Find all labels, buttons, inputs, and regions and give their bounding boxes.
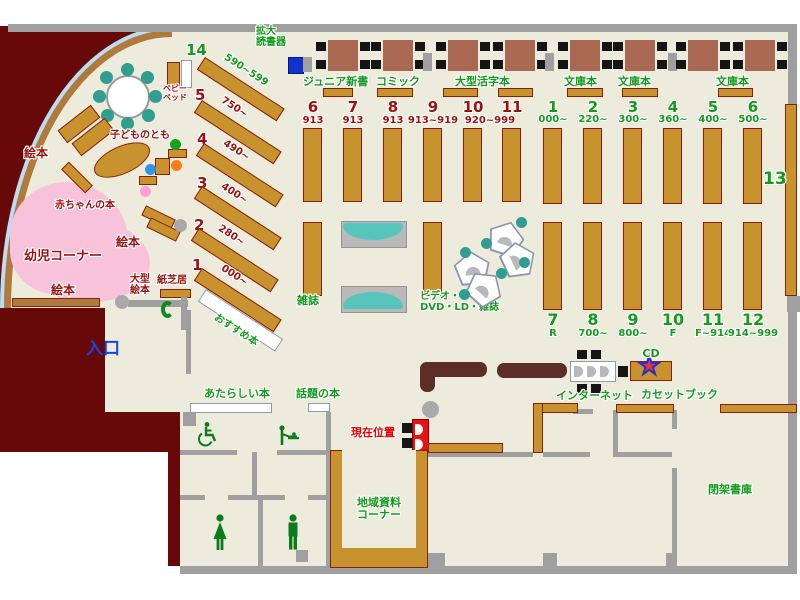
chair-dot — [141, 71, 154, 84]
large-picture-books-label: 大型 絵本 — [130, 274, 150, 296]
bookshelf — [443, 88, 478, 97]
bookshelf — [623, 128, 642, 204]
printer-box — [618, 366, 628, 377]
bookshelf — [543, 222, 562, 310]
pillar — [115, 295, 129, 309]
wall — [186, 310, 191, 374]
bookshelf — [543, 128, 562, 204]
chair-dot — [519, 257, 530, 268]
baby-changing-icon — [275, 424, 301, 450]
chair — [613, 60, 623, 69]
chair — [493, 42, 503, 51]
reading-table — [383, 40, 413, 71]
chair — [657, 42, 667, 51]
comic-label: コミック — [376, 76, 420, 88]
chair-dot — [481, 238, 492, 249]
bookshelf — [567, 88, 603, 97]
reading-table — [505, 40, 535, 71]
bookshelf — [498, 88, 533, 97]
magnify-reader-device — [288, 57, 304, 74]
wall-stub — [666, 553, 677, 566]
wheelchair-icon — [197, 421, 221, 447]
reading-table — [570, 40, 600, 71]
chair — [415, 42, 425, 51]
bookshelf — [583, 128, 602, 204]
bookshelf — [743, 128, 762, 204]
man-icon — [285, 514, 301, 552]
phone-icon — [161, 301, 174, 318]
wall-stub — [183, 412, 196, 426]
wall — [277, 450, 330, 455]
reading-table — [625, 40, 655, 71]
service-counter — [497, 363, 567, 378]
bunko-label: 文庫本 — [564, 76, 597, 88]
chair-dot — [93, 90, 106, 103]
kids-mag-label: 子どものとも — [110, 130, 170, 141]
chair — [577, 350, 587, 359]
step-shelf — [155, 158, 170, 175]
wall-top — [8, 24, 792, 32]
reading-table — [448, 40, 478, 71]
bunko-label: 文庫本 — [716, 76, 749, 88]
chair — [777, 42, 787, 51]
magnify-reader-label: 拡大 読書器 — [256, 26, 286, 48]
bookshelf — [343, 128, 362, 202]
chair — [602, 60, 612, 69]
chair — [558, 60, 568, 69]
wall — [672, 468, 677, 566]
bookshelf — [622, 88, 658, 97]
chair — [436, 42, 446, 51]
service-counter — [420, 362, 435, 392]
kiosk-chair — [402, 423, 412, 433]
picture-books-label: 絵本 — [51, 284, 75, 297]
entrance-label: 入口 — [86, 340, 120, 359]
wall-bottom — [180, 566, 794, 574]
junior-label: ジュニア新書 — [303, 76, 368, 88]
closed-stacks-label: 閉架書庫 — [708, 484, 752, 496]
cd-label: CD — [631, 348, 671, 360]
topic-books-shelf — [308, 403, 330, 412]
wall — [128, 300, 188, 307]
bookshelf — [583, 222, 602, 310]
wall — [252, 452, 257, 498]
bookshelf-13 — [785, 104, 797, 296]
chair — [733, 42, 743, 51]
large-print-label: 大型活字本 — [455, 76, 510, 88]
col-number: 12 — [726, 311, 780, 329]
kids-corner-bottom-wall — [12, 298, 100, 307]
chair — [676, 42, 686, 51]
infant-corner-label: 幼児コーナー — [24, 250, 102, 265]
chair — [558, 42, 568, 51]
carrel-seat — [475, 283, 492, 299]
chair — [602, 42, 612, 51]
chair — [777, 60, 787, 69]
bookshelf — [423, 128, 442, 202]
new-books-label: あたらしい本 — [204, 388, 270, 400]
chair — [733, 60, 743, 69]
col-range: 913~919 — [406, 115, 460, 126]
pillar — [787, 296, 800, 312]
kamishibai-label: 紙芝居 — [157, 275, 187, 286]
chair-dot — [121, 117, 134, 130]
wall — [228, 495, 285, 500]
bookshelf — [303, 128, 322, 202]
wall-stub — [788, 411, 797, 426]
pillar — [545, 53, 554, 71]
chair — [657, 60, 667, 69]
chair — [720, 60, 730, 69]
bookshelf — [377, 88, 413, 97]
bookshelf — [743, 222, 762, 310]
new-books-shelf — [190, 403, 272, 413]
col-range: 920~999 — [455, 115, 525, 126]
bookshelf — [663, 222, 682, 310]
col-range: 500~ — [726, 114, 780, 125]
reading-table — [688, 40, 718, 71]
bookshelf — [703, 128, 722, 204]
internet-label: インターネット — [556, 390, 633, 402]
woman-icon — [212, 514, 228, 552]
bookshelf — [703, 222, 722, 310]
reading-table — [745, 40, 775, 71]
pillar — [303, 57, 312, 72]
chair-dot — [100, 71, 113, 84]
chair — [591, 350, 601, 359]
chair — [371, 42, 381, 51]
kiosk-chair — [402, 438, 412, 448]
shelf13-label: 13 — [763, 170, 787, 189]
stool-pink — [140, 186, 151, 197]
page-white-cutout — [0, 452, 168, 600]
wall-stub — [428, 553, 445, 566]
pillar — [174, 219, 187, 232]
stool-green — [170, 139, 181, 150]
current-position-label: 現在位置 — [351, 427, 395, 439]
bookshelf — [323, 88, 353, 97]
bookshelf — [463, 128, 482, 202]
chair — [537, 42, 547, 51]
bookshelf — [428, 443, 503, 453]
col-range: 914~999 — [726, 328, 780, 339]
chair-dot — [460, 247, 471, 258]
chair-dot — [496, 268, 507, 279]
chair — [480, 60, 490, 69]
outside-area-entrance — [105, 412, 180, 452]
chair — [371, 60, 381, 69]
picture-books-label: 絵本 — [24, 147, 48, 160]
step-shelf — [139, 176, 157, 185]
chair — [676, 60, 686, 69]
video-shelf — [423, 222, 442, 296]
chair — [360, 42, 370, 51]
reading-table — [328, 40, 358, 71]
wall — [180, 495, 205, 500]
stool-orange — [171, 160, 182, 171]
step-shelf — [168, 149, 187, 158]
bookshelf — [663, 128, 682, 204]
magazines-label: 雑誌 — [297, 295, 319, 307]
wall — [618, 452, 672, 457]
picture-books-label: 絵本 — [116, 236, 140, 249]
outside-area-left — [0, 308, 105, 452]
topic-books-label: 話題の本 — [296, 388, 340, 400]
chair — [436, 60, 446, 69]
bookshelf — [623, 222, 642, 310]
chair — [360, 60, 370, 69]
library-floor-map: 絵本 絵本 絵本 赤ちゃんの本 幼児コーナー 子どものとも ベビー ベッド 大型… — [0, 0, 800, 600]
chair-dot — [142, 109, 155, 122]
regional-label: 地域資料 コーナー — [342, 497, 416, 522]
wall — [543, 452, 590, 457]
wall — [613, 410, 618, 457]
wall-stub — [543, 553, 557, 566]
bookshelf — [502, 128, 521, 202]
chair — [720, 42, 730, 51]
magazine-shelf — [303, 222, 322, 296]
chair — [493, 60, 503, 69]
wall — [180, 450, 237, 455]
pillar — [423, 53, 432, 71]
bookshelf — [616, 404, 674, 413]
cassette-label: カセットブック — [641, 389, 718, 401]
chair-dot — [459, 289, 470, 300]
bookshelf — [718, 88, 753, 97]
chair — [613, 42, 623, 51]
bunko-label: 文庫本 — [618, 76, 651, 88]
wall — [258, 497, 263, 566]
bookshelf — [383, 128, 402, 202]
baby-bed-label: ベビー ベッド — [163, 85, 187, 103]
pillar — [422, 401, 439, 418]
chair — [316, 60, 326, 69]
chair — [480, 42, 490, 51]
shelf-number: 14 — [186, 42, 207, 59]
bookshelf — [720, 404, 797, 413]
stool-blue — [145, 164, 156, 175]
baby-bed — [167, 62, 180, 86]
chair-dot — [516, 217, 527, 228]
chair — [316, 42, 326, 51]
chair-dot — [121, 63, 134, 76]
baby-books-label: 赤ちゃんの本 — [55, 200, 115, 211]
bookshelf — [533, 403, 543, 453]
chair-dot — [149, 90, 162, 103]
outside-strip — [168, 452, 180, 566]
